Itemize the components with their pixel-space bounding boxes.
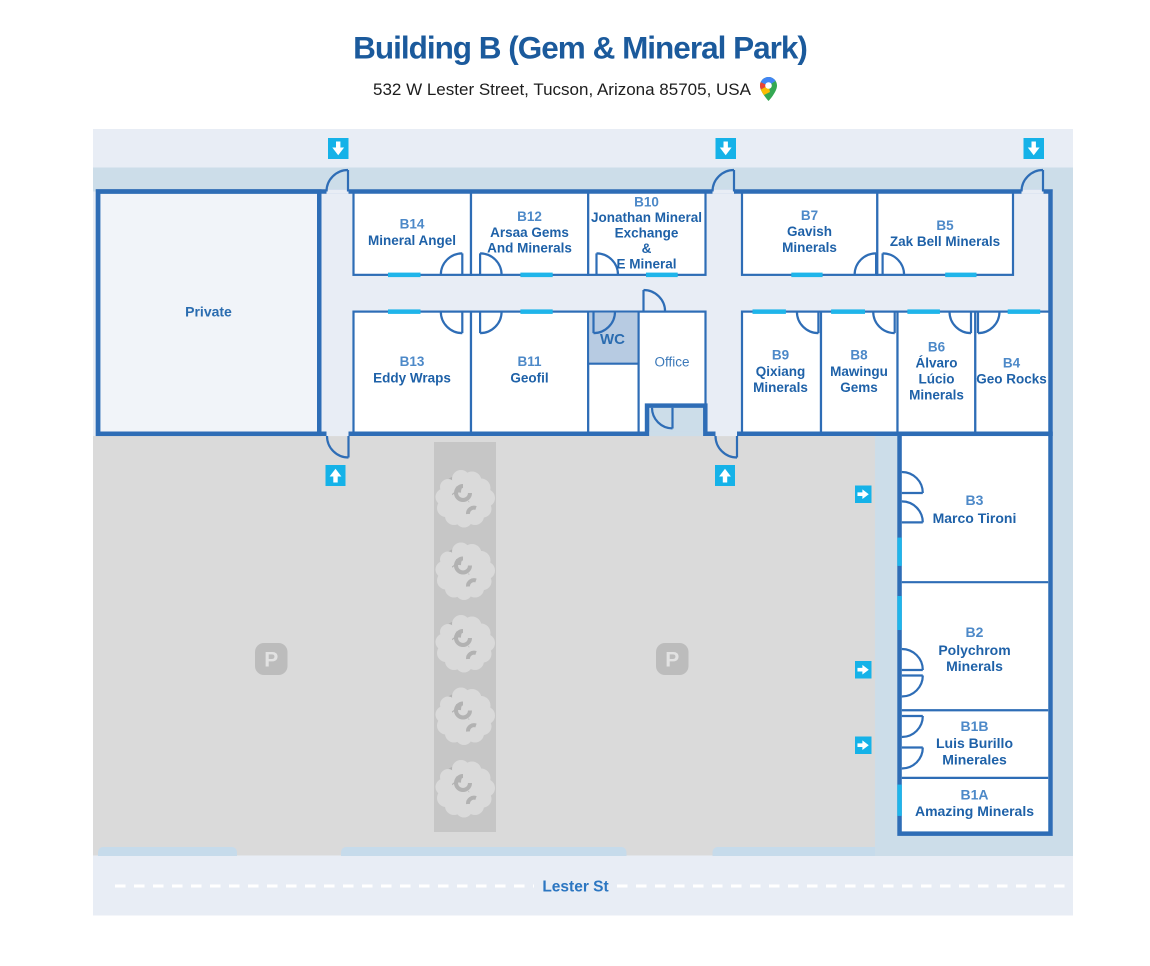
svg-text:Minerals: Minerals	[753, 380, 808, 395]
svg-text:Polychrom: Polychrom	[938, 642, 1010, 658]
svg-text:Exchange: Exchange	[615, 226, 679, 241]
svg-text:Minerales: Minerales	[942, 752, 1007, 768]
svg-text:Arsaa Gems: Arsaa Gems	[490, 225, 569, 240]
svg-text:B7: B7	[801, 208, 818, 223]
svg-text:Gems: Gems	[840, 380, 878, 395]
svg-text:B1A: B1A	[960, 787, 988, 803]
svg-text:Qixiang: Qixiang	[756, 364, 806, 379]
svg-text:Jonathan Mineral: Jonathan Mineral	[591, 210, 702, 225]
svg-text:P: P	[264, 649, 278, 672]
svg-text:Geofil: Geofil	[510, 371, 548, 386]
svg-text:B6: B6	[928, 340, 946, 355]
svg-text:B14: B14	[400, 217, 425, 232]
svg-text:B4: B4	[1003, 356, 1021, 371]
svg-text:B8: B8	[850, 348, 868, 363]
svg-text:Gavish: Gavish	[787, 224, 832, 239]
svg-text:Zak Bell Minerals: Zak Bell Minerals	[890, 234, 1000, 249]
svg-text:Geo Rocks: Geo Rocks	[976, 372, 1047, 387]
svg-text:Minerals: Minerals	[782, 240, 837, 255]
svg-text:Mawingu: Mawingu	[830, 364, 888, 379]
svg-text:Mineral Angel: Mineral Angel	[368, 233, 456, 248]
svg-text:B13: B13	[400, 354, 425, 369]
svg-text:Luis Burillo: Luis Burillo	[936, 735, 1013, 751]
svg-text:Lester St: Lester St	[542, 879, 608, 896]
svg-text:Álvaro: Álvaro	[915, 356, 957, 371]
svg-text:E Mineral: E Mineral	[616, 257, 676, 272]
svg-text:Eddy Wraps: Eddy Wraps	[373, 371, 451, 386]
svg-text:Lúcio: Lúcio	[919, 372, 955, 387]
svg-text:And Minerals: And Minerals	[487, 241, 572, 256]
svg-text:Office: Office	[654, 355, 689, 370]
svg-text:B5: B5	[936, 218, 954, 233]
svg-text:Marco Tironi: Marco Tironi	[933, 510, 1017, 526]
svg-text:B3: B3	[966, 492, 984, 508]
svg-text:Amazing Minerals: Amazing Minerals	[915, 803, 1034, 819]
svg-text:532 W Lester Street, Tucson, A: 532 W Lester Street, Tucson, Arizona 857…	[373, 80, 752, 99]
svg-text:Building B (Gem & Mineral Park: Building B (Gem & Mineral Park)	[353, 30, 807, 66]
svg-text:Private: Private	[185, 304, 232, 320]
svg-text:&: &	[642, 241, 652, 256]
svg-text:WC: WC	[600, 331, 625, 348]
svg-text:Minerals: Minerals	[909, 388, 964, 403]
svg-text:P: P	[665, 649, 679, 672]
svg-text:B12: B12	[517, 209, 542, 224]
svg-text:B11: B11	[517, 354, 542, 369]
svg-text:B1B: B1B	[960, 718, 988, 734]
svg-text:B2: B2	[966, 624, 984, 640]
svg-text:B10: B10	[634, 195, 659, 210]
svg-text:Minerals: Minerals	[946, 658, 1003, 674]
svg-text:B9: B9	[772, 348, 789, 363]
